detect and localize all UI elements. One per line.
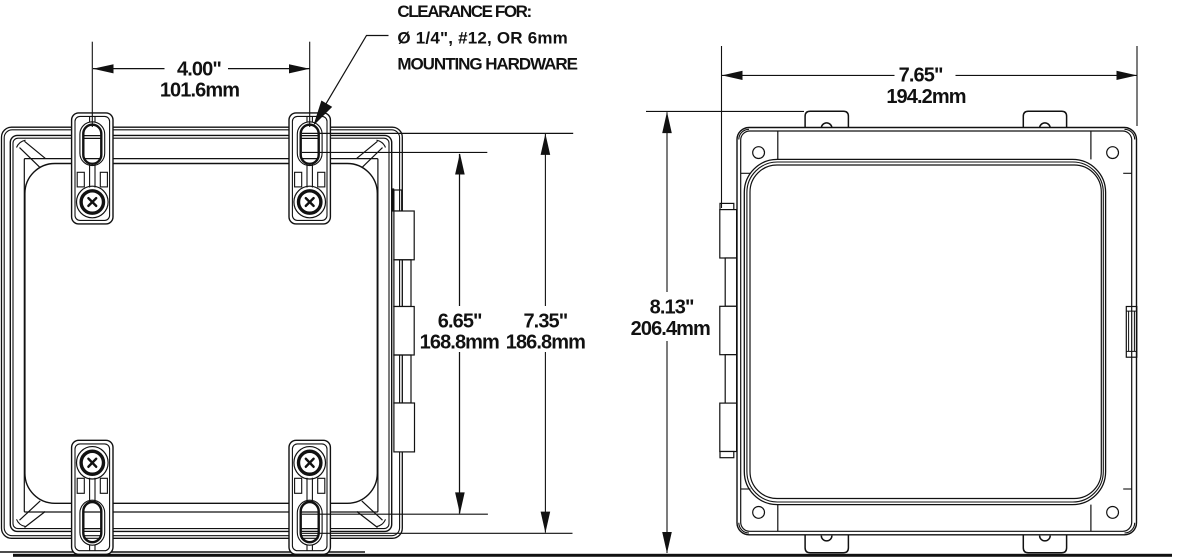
svg-text:7.65": 7.65" [899,64,943,86]
svg-text:206.4mm: 206.4mm [631,318,710,340]
svg-text:6.65": 6.65" [438,310,482,332]
svg-text:101.6mm: 101.6mm [160,80,239,102]
svg-text:7.35": 7.35" [523,310,567,332]
svg-text:Ø 1/4", #12, OR 6mm: Ø 1/4", #12, OR 6mm [397,28,568,47]
svg-text:MOUNTING HARDWARE: MOUNTING HARDWARE [397,55,577,74]
svg-text:168.8mm: 168.8mm [420,332,499,354]
svg-text:194.2mm: 194.2mm [886,86,965,108]
svg-text:186.8mm: 186.8mm [506,332,585,354]
svg-text:CLEARANCE FOR:: CLEARANCE FOR: [397,2,531,21]
svg-text:8.13": 8.13" [650,297,694,319]
svg-text:4.00": 4.00" [177,58,221,80]
